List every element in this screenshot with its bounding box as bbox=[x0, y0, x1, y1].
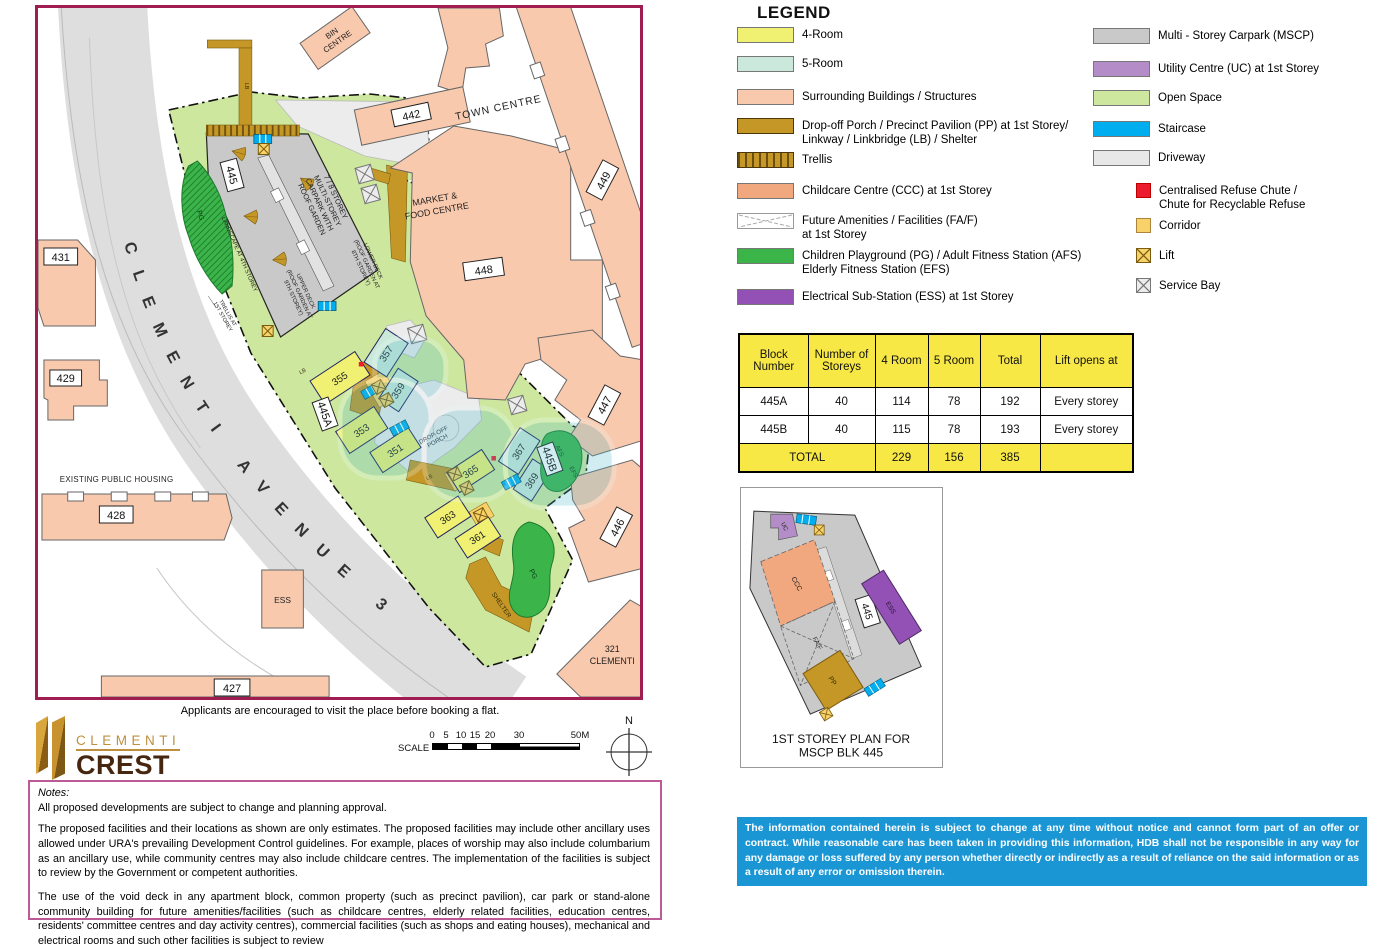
svg-text:428: 428 bbox=[107, 510, 125, 522]
legend-title: LEGEND bbox=[757, 3, 831, 23]
scale-tick: 20 bbox=[485, 730, 496, 741]
legend-item-open-space: Open Space bbox=[1093, 90, 1222, 106]
dropoff-swatch bbox=[737, 118, 794, 134]
north-label: N bbox=[625, 715, 633, 727]
legend-item-staircase: Staircase bbox=[1093, 121, 1206, 137]
5room-swatch bbox=[737, 56, 794, 72]
surrounding-swatch bbox=[737, 89, 794, 105]
table-row: 445B 40 115 78 193 Every storey bbox=[739, 416, 1133, 444]
svg-text:431: 431 bbox=[52, 252, 70, 264]
legend-item-lift: Lift bbox=[1093, 248, 1174, 263]
4room-swatch bbox=[737, 27, 794, 43]
service-bay-swatch bbox=[1136, 278, 1151, 293]
notes-p2: The proposed facilities and their locati… bbox=[38, 822, 650, 881]
total-label: TOTAL bbox=[739, 444, 875, 473]
site-map-panel: 445 7 / 8 STOREY MULTI-STOREY CARPARK WI… bbox=[35, 5, 643, 700]
north-arrow: N bbox=[600, 714, 658, 780]
legend-item-corridor: Corridor bbox=[1093, 218, 1201, 233]
staircase-swatch bbox=[1093, 121, 1150, 137]
scale-tick: 10 bbox=[456, 730, 467, 741]
trellis-bar bbox=[206, 125, 299, 136]
logo-bar-icon bbox=[52, 716, 65, 780]
plan-caption-2: MSCP BLK 445 bbox=[799, 746, 884, 760]
notes-title: Notes: bbox=[38, 786, 650, 801]
disclaimer-banner: The information contained herein is subj… bbox=[737, 817, 1367, 886]
mscp-swatch bbox=[1093, 28, 1150, 44]
scale-tick: 0 bbox=[429, 730, 434, 741]
existing-housing-label: EXISTING PUBLIC HOUSING bbox=[60, 475, 174, 484]
playground-swatch bbox=[737, 248, 794, 264]
table-header-row: Block Number Number of Storeys 4 Room 5 … bbox=[739, 334, 1133, 388]
lift-swatch bbox=[1136, 248, 1151, 263]
legend-item-ess: Electrical Sub-Station (ESS) at 1st Stor… bbox=[737, 289, 1014, 305]
childcare-swatch bbox=[737, 183, 794, 199]
notes-p1: All proposed developments are subject to… bbox=[38, 801, 650, 816]
col-total: Total bbox=[980, 334, 1040, 388]
notes-panel: Notes: All proposed developments are sub… bbox=[28, 780, 662, 920]
legend-item-dropoff: Drop-off Porch / Precinct Pavilion (PP) … bbox=[737, 118, 1068, 147]
logo-name-bottom: CREST bbox=[76, 751, 180, 779]
scale-word: SCALE bbox=[398, 743, 429, 754]
future-amenities-swatch bbox=[737, 213, 794, 229]
lb-label: LB bbox=[243, 83, 249, 90]
col-lift-opens: Lift opens at bbox=[1040, 334, 1133, 388]
site-map-svg: 445 7 / 8 STOREY MULTI-STOREY CARPARK WI… bbox=[38, 8, 640, 697]
scale-tick: 5 bbox=[443, 730, 448, 741]
col-block-number: Block Number bbox=[739, 334, 808, 388]
col-4room: 4 Room bbox=[875, 334, 928, 388]
legend-item-surrounding: Surrounding Buildings / Structures bbox=[737, 89, 977, 105]
col-5room: 5 Room bbox=[928, 334, 980, 388]
total-empty-cell bbox=[1040, 444, 1133, 473]
block-321-label2: CLEMENTI bbox=[590, 656, 635, 666]
legend-item-driveway: Driveway bbox=[1093, 150, 1205, 166]
legend-item-refuse: Centralised Refuse Chute / Chute for Rec… bbox=[1093, 183, 1305, 212]
utility-swatch bbox=[1093, 61, 1150, 77]
driveway-swatch bbox=[1093, 150, 1150, 166]
scale-bar: SCALE 0 5 10 15 20 30 50M bbox=[398, 730, 598, 760]
legend-item-future-amenities: Future Amenities / Facilities (FA/F) at … bbox=[737, 213, 978, 242]
scale-bar-strip bbox=[432, 743, 580, 750]
clementi-crest-logo: CLEMENTI CREST bbox=[36, 716, 186, 782]
scale-tick: 50M bbox=[571, 730, 589, 741]
svg-text:429: 429 bbox=[57, 373, 75, 385]
legend-item-playground: Children Playground (PG) / Adult Fitness… bbox=[737, 248, 1081, 277]
legend-item-4room: 4-Room bbox=[737, 27, 843, 43]
page: 445 7 / 8 STOREY MULTI-STOREY CARPARK WI… bbox=[0, 0, 1397, 896]
logo-bar-icon bbox=[36, 716, 48, 774]
open-space-swatch bbox=[1093, 90, 1150, 106]
corridor-swatch bbox=[1136, 218, 1151, 233]
block-321-label: 321 bbox=[605, 644, 620, 654]
svg-text:448: 448 bbox=[474, 264, 494, 278]
table-total-row: TOTAL 229 156 385 bbox=[739, 444, 1133, 473]
scale-tick: 30 bbox=[514, 730, 525, 741]
legend-item-trellis: Trellis bbox=[737, 152, 832, 168]
plan-caption-1: 1ST STOREY PLAN FOR bbox=[772, 732, 910, 746]
trellis-swatch bbox=[737, 152, 794, 168]
logo-name-top: CLEMENTI bbox=[76, 733, 180, 751]
legend-item-childcare: Childcare Centre (CCC) at 1st Storey bbox=[737, 183, 992, 199]
block-info-table: Block Number Number of Storeys 4 Room 5 … bbox=[738, 333, 1134, 473]
legend-item-utility: Utility Centre (UC) at 1st Storey bbox=[1093, 61, 1319, 77]
ess-site-label: ESS bbox=[274, 595, 291, 605]
mscp-first-storey-plan: UC CCC FA/F 445 ESS PP 1ST STOREY PLAN F… bbox=[740, 487, 943, 768]
table-row: 445A 40 114 78 192 Every storey bbox=[739, 388, 1133, 416]
refuse-swatch bbox=[1136, 183, 1151, 198]
notes-p3: The use of the void deck in any apartmen… bbox=[38, 890, 650, 949]
ess-swatch bbox=[737, 289, 794, 305]
lift-icon bbox=[814, 525, 824, 535]
svg-text:427: 427 bbox=[223, 683, 241, 695]
legend-item-service-bay: Service Bay bbox=[1093, 278, 1220, 293]
col-storeys: Number of Storeys bbox=[808, 334, 875, 388]
legend-item-mscp: Multi - Storey Carpark (MSCP) bbox=[1093, 28, 1314, 44]
scale-tick: 15 bbox=[470, 730, 481, 741]
legend-item-5room: 5-Room bbox=[737, 56, 843, 72]
